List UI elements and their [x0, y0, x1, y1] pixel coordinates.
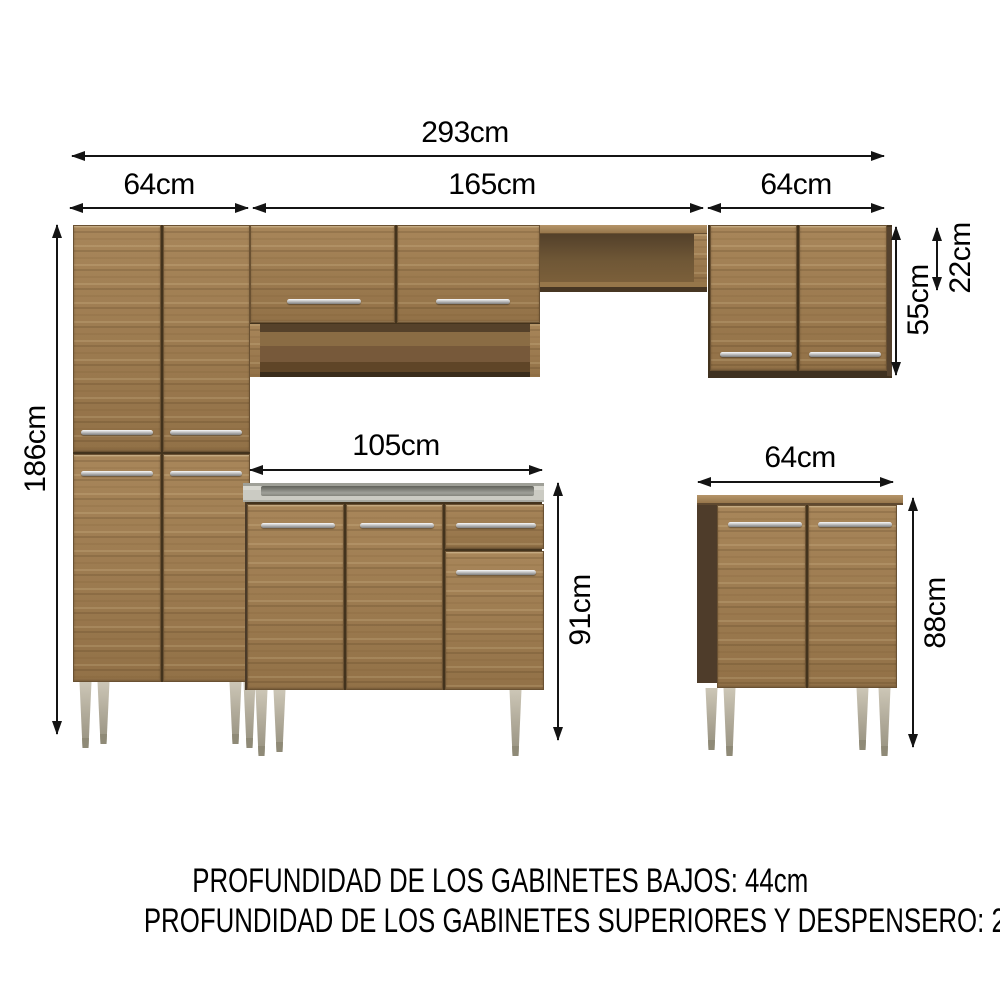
sink-drawer-handle: [456, 523, 536, 528]
cabinet-leg: [254, 690, 269, 756]
cabinet-leg: [704, 688, 719, 750]
sink-handle: [261, 523, 335, 528]
dim-arrow-total-width: [72, 155, 884, 157]
upper-middle-cabinet: [250, 225, 540, 377]
pantry-door-lower-right: [163, 454, 250, 682]
dim-label-pantry-width: 64cm: [123, 170, 194, 200]
upper-middle-handle: [287, 299, 361, 304]
sink-door-left: [247, 504, 344, 690]
upper-right-cabinet: [708, 225, 892, 378]
bridge-bottom-shelf: [540, 282, 707, 292]
kitchen-dimension-diagram: 293cm 64cm 165cm 64cm 105cm 64cm 186cm 5…: [0, 0, 1000, 1000]
cabinet-leg: [96, 682, 111, 744]
sink-handle: [456, 570, 536, 575]
cabinet-leg: [242, 682, 257, 748]
pantry-handle: [170, 430, 242, 435]
dim-arrow-counter-width: [250, 469, 542, 471]
dim-label-shelf-height: 22cm: [946, 222, 976, 293]
base-door-right: [808, 505, 897, 688]
depth-note-upper: PROFUNDIDAD DE LOS GABINETES SUPERIORES …: [0, 902, 1000, 940]
sink-door-middle: [346, 504, 443, 690]
sink-handle: [360, 523, 434, 528]
pantry-handle: [81, 430, 153, 435]
base-handle: [818, 522, 892, 527]
dim-arrow-pantry-height: [56, 225, 58, 734]
upper-middle-door-right: [397, 225, 540, 323]
depth-note-base: PROFUNDIDAD DE LOS GABINETES BAJOS: 44cm: [0, 862, 1000, 900]
pantry-cabinet: [73, 225, 250, 682]
sink-cabinet: [245, 502, 542, 690]
pantry-door-upper-right: [163, 225, 250, 452]
dim-arrow-upper-row-width: [253, 207, 703, 209]
dim-label-counter-height: 91cm: [566, 574, 596, 645]
cabinet-leg: [508, 690, 523, 756]
base-handle: [728, 522, 802, 527]
base-cabinet: [717, 505, 897, 688]
upper-right-handle: [720, 352, 792, 357]
depth-note-base-text: PROFUNDIDAD DE LOS GABINETES BAJOS: 44cm: [192, 862, 808, 900]
base-cabinet-top: [697, 495, 903, 505]
dim-label-upper-right-width: 64cm: [760, 170, 831, 200]
cabinet-leg: [855, 688, 870, 750]
sink-basin: [261, 486, 534, 496]
sink-countertop: [243, 483, 544, 502]
bridge-side-wall: [694, 234, 707, 282]
dim-label-base-width: 64cm: [764, 443, 835, 473]
dim-label-upper-row-width: 165cm: [448, 170, 536, 200]
dim-arrow-shelf-height: [936, 228, 938, 290]
open-niche: [250, 324, 540, 377]
pantry-handle: [81, 471, 153, 476]
dim-label-upper-height: 55cm: [904, 264, 934, 335]
dim-arrow-upper-right-width: [708, 207, 884, 209]
depth-note-upper-text: PROFUNDIDAD DE LOS GABINETES SUPERIORES …: [144, 902, 1000, 940]
upper-right-bottom-edge: [708, 371, 889, 378]
base-cabinet-side-panel: [697, 497, 717, 683]
dim-arrow-upper-height: [895, 227, 897, 375]
upper-middle-door-left: [250, 225, 395, 323]
niche-side-wall: [530, 324, 540, 377]
dim-label-base-height: 88cm: [921, 577, 951, 648]
dim-label-total-width: 293cm: [421, 118, 509, 148]
bridge-open-back: [540, 234, 707, 282]
pantry-door-lower-left: [73, 454, 161, 682]
pantry-handle: [170, 471, 242, 476]
dim-arrow-base-width: [698, 481, 893, 483]
dim-arrow-counter-height: [557, 483, 559, 740]
pantry-door-upper-left: [73, 225, 161, 452]
upper-middle-handle: [436, 299, 510, 304]
cabinet-leg: [722, 688, 737, 756]
upper-right-door-right: [799, 225, 887, 371]
dim-arrow-pantry-width: [70, 207, 248, 209]
upper-right-door-left: [710, 225, 797, 371]
upper-right-side-panel: [887, 227, 892, 376]
dim-label-pantry-height: 186cm: [21, 405, 51, 493]
dim-label-counter-width: 105cm: [352, 431, 440, 461]
cabinet-leg: [272, 690, 287, 752]
cabinet-leg: [877, 688, 892, 756]
open-shelf-bridge: [540, 225, 707, 292]
niche-side-wall: [250, 324, 260, 377]
base-door-left: [717, 505, 806, 688]
dim-arrow-base-height: [912, 498, 914, 747]
cabinet-leg: [228, 682, 243, 744]
bridge-top-panel: [540, 225, 707, 234]
cabinet-leg: [78, 682, 93, 748]
upper-right-handle: [809, 352, 881, 357]
